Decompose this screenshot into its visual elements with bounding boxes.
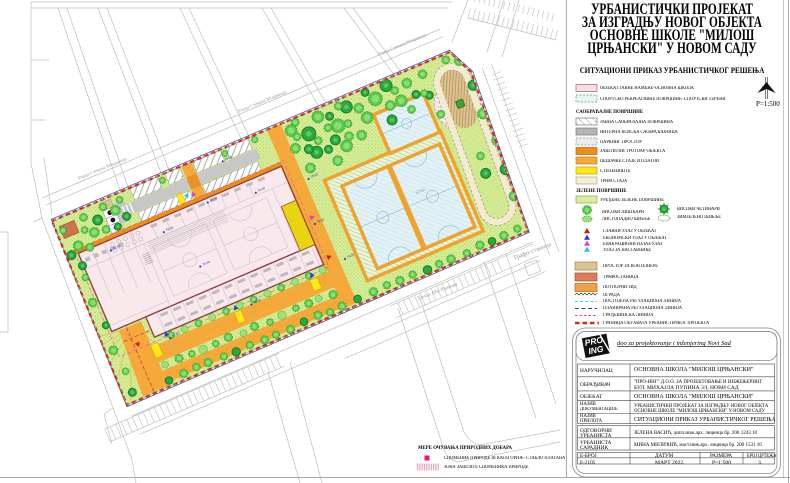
svg-text:doo za projektovanje i inženje: doo za projektovanje i inženjering Novi … (617, 340, 732, 347)
